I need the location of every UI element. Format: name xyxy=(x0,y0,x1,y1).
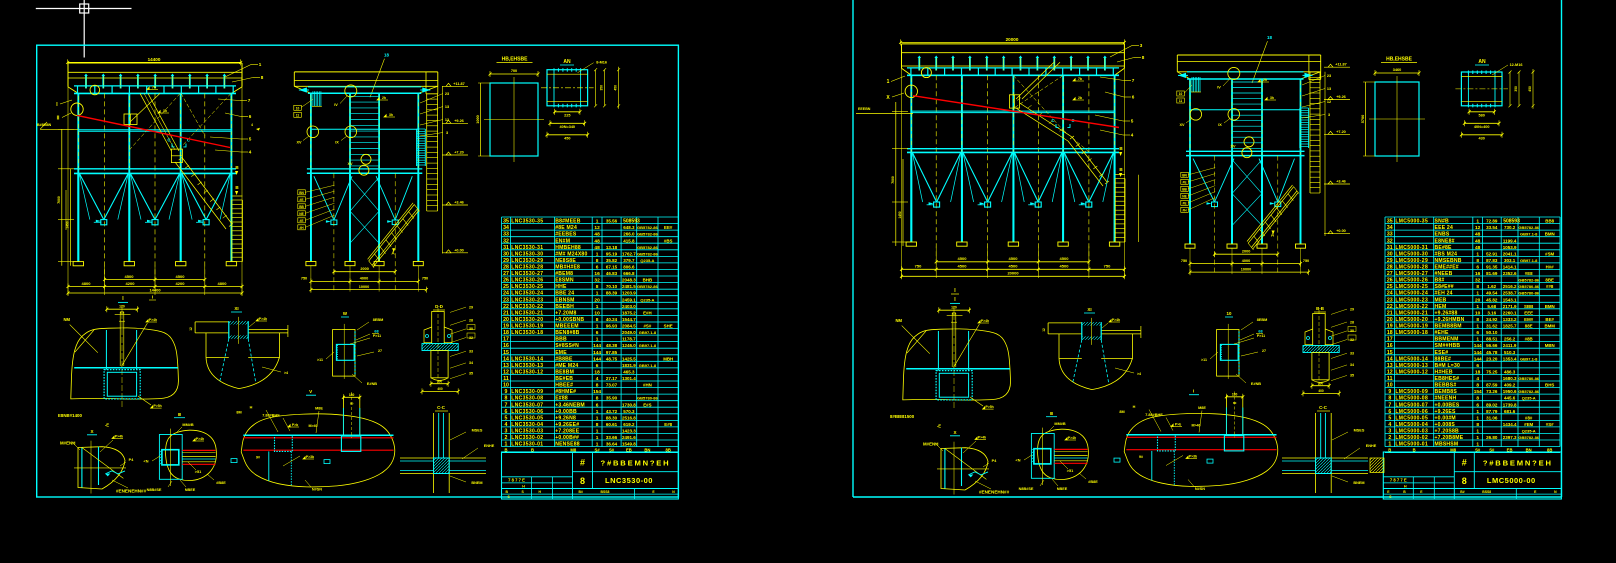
svg-text:LNC3530-27: LNC3530-27 xyxy=(511,271,543,277)
svg-text:GB5782-86: GB5782-86 xyxy=(637,232,658,237)
svg-text:450: 450 xyxy=(1528,86,1532,92)
svg-text:14: 14 xyxy=(1387,356,1393,362)
svg-text:P>4h: P>4h xyxy=(259,317,267,321)
svg-text:P>b: P>b xyxy=(292,423,298,427)
svg-text:73.26: 73.26 xyxy=(1486,389,1498,394)
svg-text:#: # xyxy=(580,458,585,468)
svg-text:LNC3530-25: LNC3530-25 xyxy=(511,284,543,290)
svg-text:P>5h: P>5h xyxy=(153,404,161,408)
svg-text:4500: 4500 xyxy=(1060,256,1070,261)
svg-text:20000: 20000 xyxy=(1007,271,1019,276)
svg-text:LMC5000-13: LMC5000-13 xyxy=(1395,363,1428,369)
svg-text:570.3: 570.3 xyxy=(623,409,635,414)
svg-text:35: 35 xyxy=(503,219,509,225)
svg-text:+7.20: +7.20 xyxy=(454,151,464,155)
svg-text:750: 750 xyxy=(422,277,428,281)
svg-text:144: 144 xyxy=(1474,343,1482,349)
svg-text:33: 33 xyxy=(469,350,473,354)
svg-text:18: 18 xyxy=(1387,330,1393,336)
svg-text:>11: >11 xyxy=(1201,358,1207,362)
svg-text:14: 14 xyxy=(503,356,509,362)
svg-text:BE8BM: BE8BM xyxy=(555,370,574,376)
svg-text:48: 48 xyxy=(1475,245,1481,251)
svg-text:68: 68 xyxy=(1258,330,1262,334)
svg-text:4200: 4200 xyxy=(126,281,136,286)
svg-text:+7.20B8ME: +7.20B8ME xyxy=(1435,435,1464,441)
svg-text:91.35: 91.35 xyxy=(1486,265,1498,270)
svg-text:30: 30 xyxy=(1387,251,1393,257)
svg-text:31.06: 31.06 xyxy=(1486,415,1498,420)
svg-text:2352.6: 2352.6 xyxy=(1503,271,1517,276)
svg-text:+9.26HMBN: +9.26HMBN xyxy=(1435,317,1465,323)
svg-text:N#SN: N#SN xyxy=(312,488,322,492)
svg-text:BBB: BBB xyxy=(555,337,567,343)
svg-text:LNC3530-13: LNC3530-13 xyxy=(511,363,543,369)
svg-text:5: 5 xyxy=(1388,415,1391,421)
svg-text:ESE#: ESE# xyxy=(1435,350,1449,356)
svg-text:1: 1 xyxy=(596,415,599,421)
svg-text:GB5782-86: GB5782-86 xyxy=(1518,435,1539,440)
svg-text:48: 48 xyxy=(594,238,600,244)
svg-text:3: 3 xyxy=(505,429,508,435)
svg-text:1: 1 xyxy=(259,62,262,67)
svg-text:22: 22 xyxy=(1387,304,1393,310)
svg-text:27: 27 xyxy=(1262,349,1266,353)
svg-text:Q235-A: Q235-A xyxy=(1522,396,1536,401)
svg-text:750: 750 xyxy=(301,277,307,281)
svg-text:33: 33 xyxy=(1350,352,1354,356)
svg-text:8#BBB1500: 8#BBB1500 xyxy=(890,414,915,419)
svg-text:LMC5000-26: LMC5000-26 xyxy=(1395,278,1428,284)
svg-text:#: # xyxy=(1462,458,1467,468)
svg-text:24.92: 24.92 xyxy=(1486,317,1498,322)
svg-text:1199.4: 1199.4 xyxy=(1503,238,1517,243)
svg-text:7.88#BHE: 7.88#BHE xyxy=(262,414,280,418)
svg-text:1950.6: 1950.6 xyxy=(1503,389,1517,394)
svg-text:1: 1 xyxy=(596,409,599,415)
svg-text:LMC5000-27: LMC5000-27 xyxy=(1395,271,1428,277)
svg-text:6: 6 xyxy=(596,363,599,369)
svg-text:31: 31 xyxy=(1387,245,1393,251)
svg-text:LNC3530-31: LNC3530-31 xyxy=(511,245,543,251)
svg-text:30: 30 xyxy=(503,251,509,257)
svg-text:4: 4 xyxy=(1131,133,1134,138)
svg-text:11: 11 xyxy=(503,376,509,382)
svg-text:Q235-A: Q235-A xyxy=(640,258,654,263)
svg-text:BE#: BE# xyxy=(1545,317,1554,322)
svg-text:1: 1 xyxy=(1476,429,1479,435)
svg-text:7: 7 xyxy=(505,402,508,408)
svg-text:33.54: 33.54 xyxy=(1486,225,1498,230)
svg-text:BHB: BHB xyxy=(643,278,653,283)
svg-text:508593: 508593 xyxy=(623,219,640,225)
svg-text:8: 8 xyxy=(1142,55,1145,60)
svg-text:HMBEH88: HMBEH88 xyxy=(555,245,581,251)
svg-text:16: 16 xyxy=(503,343,509,349)
svg-text:2516.2: 2516.2 xyxy=(1503,284,1517,289)
svg-text:12: 12 xyxy=(503,370,509,376)
svg-text:LNC3530-02: LNC3530-02 xyxy=(511,435,543,441)
svg-text:##8: ##8 xyxy=(1546,284,1554,289)
svg-text:+0.008S: +0.008S xyxy=(1435,422,1456,428)
svg-text:1: 1 xyxy=(596,291,599,297)
svg-text:BEEBH: BEEBH xyxy=(555,304,574,310)
svg-text:26.80: 26.80 xyxy=(1486,435,1498,440)
svg-text:LNC3530-01: LNC3530-01 xyxy=(511,442,543,448)
svg-text:IV: IV xyxy=(334,103,338,107)
svg-text:1543.1: 1543.1 xyxy=(1503,297,1517,302)
svg-text:29: 29 xyxy=(1387,258,1393,264)
svg-text:LNC3530-14: LNC3530-14 xyxy=(511,356,543,362)
svg-text:7b: 7b xyxy=(1078,77,1082,81)
svg-text:LMC5000-09: LMC5000-09 xyxy=(1395,389,1428,395)
svg-text:6: 6 xyxy=(249,114,252,119)
svg-text:1: 1 xyxy=(596,324,599,330)
svg-text:-E: -E xyxy=(105,423,109,428)
svg-text:HB,EHSBE: HB,EHSBE xyxy=(502,57,529,63)
svg-text:18: 18 xyxy=(1267,35,1272,40)
svg-text:GB5780-86: GB5780-86 xyxy=(637,396,658,401)
svg-text:72.89: 72.89 xyxy=(1486,219,1498,224)
svg-text:87.83: 87.83 xyxy=(1486,258,1498,263)
svg-text:#BEM8: #BEM8 xyxy=(555,271,573,277)
svg-text:23: 23 xyxy=(445,92,449,96)
svg-text:#BS: #BS xyxy=(664,238,673,243)
svg-text:12: 12 xyxy=(189,327,193,331)
svg-text:P>4h: P>4h xyxy=(1112,318,1120,322)
svg-text:5: 5 xyxy=(1131,119,1134,124)
svg-text:10: 10 xyxy=(296,106,300,110)
svg-text:1203.9: 1203.9 xyxy=(622,291,636,296)
svg-text:III: III xyxy=(1050,411,1054,416)
svg-text:4500: 4500 xyxy=(125,274,135,279)
svg-text:#B8E: #B8E xyxy=(216,481,226,485)
svg-text:35: 35 xyxy=(1350,374,1354,378)
svg-text:ENHE: ENHE xyxy=(1366,444,1377,448)
svg-text:508593: 508593 xyxy=(1503,219,1520,225)
svg-text:43.72: 43.72 xyxy=(606,409,618,414)
svg-text:BMM: BMM xyxy=(1544,324,1555,329)
svg-text:EB8HES#: EB8HES# xyxy=(1435,376,1460,382)
svg-text:18: 18 xyxy=(1475,370,1481,376)
svg-text:4800: 4800 xyxy=(218,281,228,286)
svg-text:400: 400 xyxy=(1318,389,1324,393)
svg-text:M8E: M8E xyxy=(1198,406,1206,410)
svg-text:266.0: 266.0 xyxy=(623,232,635,237)
svg-text:LMC5000-05: LMC5000-05 xyxy=(1395,415,1428,421)
svg-text:LNC3530-35: LNC3530-35 xyxy=(511,219,543,225)
svg-text:EM#: EM# xyxy=(1524,317,1534,322)
svg-text:#E8: #E8 xyxy=(1525,271,1533,276)
svg-text:13: 13 xyxy=(1327,87,1331,91)
svg-text:E#NB: E#NB xyxy=(367,382,377,386)
svg-text:1825.7: 1825.7 xyxy=(1503,324,1517,329)
svg-text:8: 8 xyxy=(1476,317,1479,323)
svg-text:I: I xyxy=(152,295,153,300)
svg-text:15: 15 xyxy=(503,350,509,356)
svg-text:+9.26: +9.26 xyxy=(1336,95,1346,99)
svg-text:+0.00: +0.00 xyxy=(454,248,464,252)
svg-text:27.17: 27.17 xyxy=(606,376,618,381)
svg-text:E#88: E#88 xyxy=(555,396,568,402)
svg-text:1353.4: 1353.4 xyxy=(1503,356,1517,361)
svg-text:NE: NE xyxy=(1182,194,1186,198)
svg-text:LNC3530-12: LNC3530-12 xyxy=(511,370,543,376)
svg-text:48.38: 48.38 xyxy=(606,343,618,348)
svg-text:8M: 8M xyxy=(236,411,241,415)
svg-text:GB5782-86: GB5782-86 xyxy=(1518,225,1539,230)
svg-text:P>4h: P>4h xyxy=(981,319,989,323)
svg-text:S8#E##: S8#E## xyxy=(1435,284,1454,290)
svg-text:P>11: P>11 xyxy=(1257,334,1265,338)
svg-text:6: 6 xyxy=(596,330,599,336)
svg-text:SBB: SBB xyxy=(1524,304,1533,309)
svg-text:8: 8 xyxy=(1476,284,1479,290)
svg-text:9#: 9# xyxy=(1139,455,1143,459)
svg-text:450: 450 xyxy=(564,136,570,140)
svg-text:LNC3530-18: LNC3530-18 xyxy=(511,330,543,336)
svg-text:H: H xyxy=(250,406,253,410)
svg-text:10: 10 xyxy=(1475,310,1481,316)
svg-text:750: 750 xyxy=(1303,259,1309,263)
svg-text:ENBS: ENBS xyxy=(1435,232,1450,238)
svg-text:EBNSM: EBNSM xyxy=(555,297,574,303)
svg-text:13: 13 xyxy=(503,363,509,369)
svg-text:+3.46: +3.46 xyxy=(1336,180,1346,184)
svg-text:80: 80 xyxy=(350,402,354,406)
svg-text:+9.26#88: +9.26#88 xyxy=(1435,310,1458,316)
svg-text:LNC3530-30: LNC3530-30 xyxy=(511,251,543,257)
svg-text:32: 32 xyxy=(1475,278,1481,284)
svg-text:GB5780-86: GB5780-86 xyxy=(1518,284,1539,289)
svg-text:48: 48 xyxy=(1475,232,1481,238)
svg-text:BEN8#8B: BEN8#8B xyxy=(555,330,579,336)
svg-text:465.3: 465.3 xyxy=(623,370,635,375)
svg-text:P>3b: P>3b xyxy=(1189,455,1197,459)
svg-text:NE8S8E: NE8S8E xyxy=(555,258,576,264)
svg-text:7: 7 xyxy=(1132,78,1135,83)
svg-text:36.64: 36.64 xyxy=(606,442,618,447)
svg-text:23: 23 xyxy=(1327,74,1331,78)
svg-text:1875.2: 1875.2 xyxy=(622,310,636,315)
svg-text:BNEM: BNEM xyxy=(1353,481,1364,485)
svg-text:NE: NE xyxy=(299,212,303,216)
svg-text:#SM: #SM xyxy=(1545,251,1554,256)
svg-text:GB97.1-8: GB97.1-8 xyxy=(639,330,657,335)
svg-text:Q235-A: Q235-A xyxy=(640,297,654,302)
svg-text:P>4h: P>4h xyxy=(978,436,986,440)
svg-text:56.66: 56.66 xyxy=(1486,343,1498,348)
svg-text:23: 23 xyxy=(503,297,509,303)
svg-text:25: 25 xyxy=(1387,284,1393,290)
svg-text:P>4h: P>4h xyxy=(196,437,204,441)
svg-text:2b: 2b xyxy=(1078,96,1082,100)
svg-text:+3.46: +3.46 xyxy=(454,201,464,205)
svg-text:52.91: 52.91 xyxy=(1486,251,1498,256)
svg-text:97.85: 97.85 xyxy=(606,350,618,355)
svg-text:379.7: 379.7 xyxy=(623,258,635,263)
svg-text:XI: XI xyxy=(234,306,238,311)
svg-text:NM: NM xyxy=(896,318,903,323)
svg-text:E8SMN: E8SMN xyxy=(555,278,574,284)
svg-text:#ENENEHN##: #ENENEHN## xyxy=(979,490,1010,495)
svg-text:2049.0: 2049.0 xyxy=(622,330,636,335)
svg-text:144: 144 xyxy=(593,356,601,362)
svg-text:+11.87: +11.87 xyxy=(453,82,465,86)
svg-text:LNC3530-07: LNC3530-07 xyxy=(511,402,543,408)
svg-text:8: 8 xyxy=(1476,396,1479,402)
svg-text:H: H xyxy=(1133,405,1136,409)
svg-text:34: 34 xyxy=(1387,225,1393,231)
svg-text:8BE: 8BE xyxy=(1545,278,1554,283)
svg-text:LMC5000-20: LMC5000-20 xyxy=(1395,317,1428,323)
svg-text:1423.3: 1423.3 xyxy=(622,429,636,434)
svg-text:1301.4: 1301.4 xyxy=(622,376,636,381)
svg-text:350: 350 xyxy=(1514,86,1518,92)
svg-text:N8B#SE: N8B#SE xyxy=(147,488,162,492)
svg-text:LMC5000-06: LMC5000-06 xyxy=(1395,409,1428,415)
svg-text:BNEM: BNEM xyxy=(471,481,482,485)
svg-text:GB97.1-8: GB97.1-8 xyxy=(1520,258,1538,263)
svg-text:2048.3: 2048.3 xyxy=(622,278,636,283)
svg-text:B#: B# xyxy=(1460,490,1464,494)
svg-text:MSES: MSES xyxy=(472,429,483,433)
svg-text:LNC3530-00: LNC3530-00 xyxy=(605,476,653,485)
svg-text:1544.7: 1544.7 xyxy=(622,317,636,322)
svg-text:5: 5 xyxy=(505,415,508,421)
svg-text:144: 144 xyxy=(1474,350,1482,356)
svg-text:E8NB#1400: E8NB#1400 xyxy=(58,413,82,418)
svg-text:>11: >11 xyxy=(317,358,323,362)
svg-text:#H: #H xyxy=(299,226,304,230)
svg-text:10: 10 xyxy=(594,310,600,316)
svg-text:29: 29 xyxy=(503,258,509,264)
svg-text:35.90: 35.90 xyxy=(606,396,618,401)
svg-text:1762.7: 1762.7 xyxy=(622,251,636,256)
svg-text:C-C: C-C xyxy=(437,405,446,410)
svg-text:1000: 1000 xyxy=(476,115,480,123)
svg-text:IX: IX xyxy=(1218,123,1222,127)
svg-text:BB: BB xyxy=(299,205,304,209)
svg-text:2041.1: 2041.1 xyxy=(1503,251,1517,256)
svg-text:2084.5: 2084.5 xyxy=(622,324,636,329)
svg-text:3h: 3h xyxy=(389,113,393,117)
svg-text:1246.0: 1246.0 xyxy=(622,343,636,348)
svg-text:MEB: MEB xyxy=(1435,297,1447,303)
svg-text:MM#B: MM#B xyxy=(182,423,193,427)
svg-text:20: 20 xyxy=(594,297,600,303)
svg-text:16: 16 xyxy=(594,271,600,277)
svg-text:4500: 4500 xyxy=(1009,264,1019,269)
svg-text:BSS8: BSS8 xyxy=(1482,490,1491,494)
svg-text:2: 2 xyxy=(505,435,508,441)
svg-text:P>4h: P>4h xyxy=(149,318,157,322)
svg-text:LNC3530-05: LNC3530-05 xyxy=(511,415,543,421)
svg-text:7 8 7 7 E: 7 8 7 7 E xyxy=(508,477,525,482)
svg-text:22: 22 xyxy=(503,304,509,310)
svg-text:450: 450 xyxy=(614,85,618,91)
svg-text:#8E M24: #8E M24 xyxy=(555,225,577,231)
svg-text:681.6: 681.6 xyxy=(1504,409,1516,414)
svg-text:B-B: B-B xyxy=(1316,306,1324,311)
svg-text:12: 12 xyxy=(1475,225,1481,231)
svg-text:LMC5000-02: LMC5000-02 xyxy=(1395,435,1428,441)
svg-text:5: 5 xyxy=(249,137,252,142)
svg-text:1: 1 xyxy=(1476,251,1479,257)
svg-text:18: 18 xyxy=(594,370,600,376)
svg-text:750: 750 xyxy=(1181,259,1187,263)
svg-text:#HN: #HN xyxy=(643,383,652,388)
svg-text:2000: 2000 xyxy=(360,267,368,271)
svg-text:8: 8 xyxy=(1476,422,1479,428)
svg-text:14400: 14400 xyxy=(149,287,161,292)
svg-text:+0.00#M: +0.00#M xyxy=(1435,415,1456,421)
svg-text:8M: 8M xyxy=(1119,410,1124,414)
svg-text:24: 24 xyxy=(503,291,509,297)
svg-text:8: 8 xyxy=(1462,476,1467,486)
svg-text:19: 19 xyxy=(1387,324,1393,330)
svg-text:<N: <N xyxy=(1016,459,1021,463)
svg-text:LMC5000-30: LMC5000-30 xyxy=(1395,251,1428,257)
svg-text:144: 144 xyxy=(593,343,601,349)
svg-text:73.07: 73.07 xyxy=(606,383,618,388)
svg-text:XV: XV xyxy=(1179,123,1185,127)
svg-text:IX: IX xyxy=(335,141,339,145)
svg-text:E#NB: E#NB xyxy=(1251,382,1261,386)
svg-text:88.51: 88.51 xyxy=(1486,337,1498,342)
svg-text:35.82: 35.82 xyxy=(606,258,618,263)
svg-text:3: 3 xyxy=(1388,429,1391,435)
svg-text:LNC3530-04: LNC3530-04 xyxy=(511,422,543,428)
svg-text:LNC3530-08: LNC3530-08 xyxy=(511,396,543,402)
svg-text:NM: NM xyxy=(64,317,71,322)
svg-text:4500: 4500 xyxy=(1060,264,1070,269)
svg-text:180: 180 xyxy=(349,393,355,397)
svg-text:LMC5000-00: LMC5000-00 xyxy=(1487,476,1536,485)
svg-text:GB5782-86: GB5782-86 xyxy=(637,284,658,289)
svg-text:48: 48 xyxy=(594,232,600,238)
svg-text:88E: 88E xyxy=(1525,324,1533,329)
svg-text:N#SN: N#SN xyxy=(1195,487,1205,491)
svg-text:C-C: C-C xyxy=(1319,405,1328,410)
svg-text:1: 1 xyxy=(1476,337,1479,343)
svg-text:13: 13 xyxy=(1387,363,1393,369)
svg-text:430: 430 xyxy=(1479,136,1485,140)
svg-text:29: 29 xyxy=(1350,307,1354,311)
svg-text:P>5h: P>5h xyxy=(985,405,993,409)
svg-text:1: 1 xyxy=(1476,409,1479,415)
svg-text:26: 26 xyxy=(503,278,509,284)
svg-text:648.3: 648.3 xyxy=(623,225,635,230)
svg-text:6: 6 xyxy=(505,409,508,415)
svg-text:4: 4 xyxy=(1388,422,1391,428)
svg-text:+3.46NEBM: +3.46NEBM xyxy=(555,402,585,408)
svg-text:26: 26 xyxy=(1387,278,1393,284)
svg-text:#8#: #8# xyxy=(1525,415,1533,420)
svg-text:750: 750 xyxy=(1104,264,1111,269)
svg-text:XI: XI xyxy=(1087,307,1091,312)
svg-text:LNC3530-06: LNC3530-06 xyxy=(511,409,543,415)
svg-text:+7.20M8: +7.20M8 xyxy=(555,310,576,316)
svg-text:3.16: 3.16 xyxy=(1487,310,1496,315)
svg-text:H##: H## xyxy=(1546,265,1555,270)
svg-text:H#HEB: H#HEB xyxy=(1435,370,1453,376)
svg-text:#M# M24X80: #M# M24X80 xyxy=(555,251,587,257)
svg-text:HB,EHSBE: HB,EHSBE xyxy=(1386,57,1413,63)
svg-text:ENHE: ENHE xyxy=(484,444,495,448)
svg-text:M>40: M>40 xyxy=(1191,423,1200,427)
svg-text:1414.1: 1414.1 xyxy=(1503,265,1517,270)
